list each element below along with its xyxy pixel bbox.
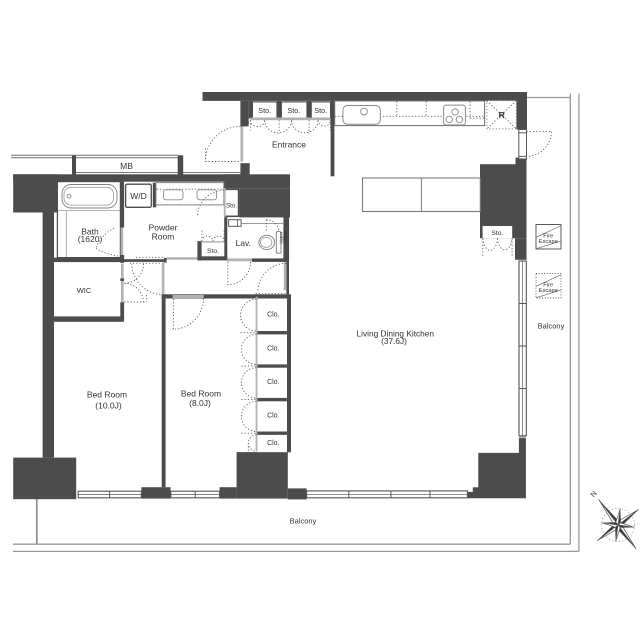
svg-text:Clo.: Clo. xyxy=(267,413,280,420)
svg-text:Room: Room xyxy=(152,231,175,241)
svg-text:Entrance: Entrance xyxy=(272,139,306,149)
svg-text:Sto.: Sto. xyxy=(226,202,237,209)
svg-text:Clo.: Clo. xyxy=(267,345,280,352)
svg-text:Clo.: Clo. xyxy=(267,440,280,447)
svg-text:Sto.: Sto. xyxy=(207,248,219,255)
svg-text:Balcony: Balcony xyxy=(538,322,565,331)
svg-text:Sto.: Sto. xyxy=(314,106,327,115)
svg-text:Clo.: Clo. xyxy=(267,312,280,319)
svg-text:Sto.: Sto. xyxy=(258,106,271,115)
svg-text:Sto.: Sto. xyxy=(288,106,301,115)
svg-text:Escape: Escape xyxy=(539,288,558,294)
svg-text:MB: MB xyxy=(120,161,133,171)
svg-text:W/D: W/D xyxy=(130,191,147,201)
svg-text:cabinet: cabinet xyxy=(282,230,287,245)
svg-text:(10.0J): (10.0J) xyxy=(95,400,122,410)
svg-text:(1620): (1620) xyxy=(78,234,103,244)
svg-text:WIC: WIC xyxy=(77,286,92,295)
svg-text:Balcony: Balcony xyxy=(290,516,317,525)
svg-text:Bed Room: Bed Room xyxy=(87,390,127,400)
svg-text:(37.6J): (37.6J) xyxy=(381,336,407,346)
svg-text:Escape: Escape xyxy=(539,239,558,245)
svg-text:Sto.: Sto. xyxy=(491,230,503,237)
svg-text:Clo.: Clo. xyxy=(267,379,280,386)
svg-text:R: R xyxy=(499,110,506,120)
svg-text:(8.0J): (8.0J) xyxy=(189,398,211,408)
svg-text:Lav.: Lav. xyxy=(236,238,251,248)
